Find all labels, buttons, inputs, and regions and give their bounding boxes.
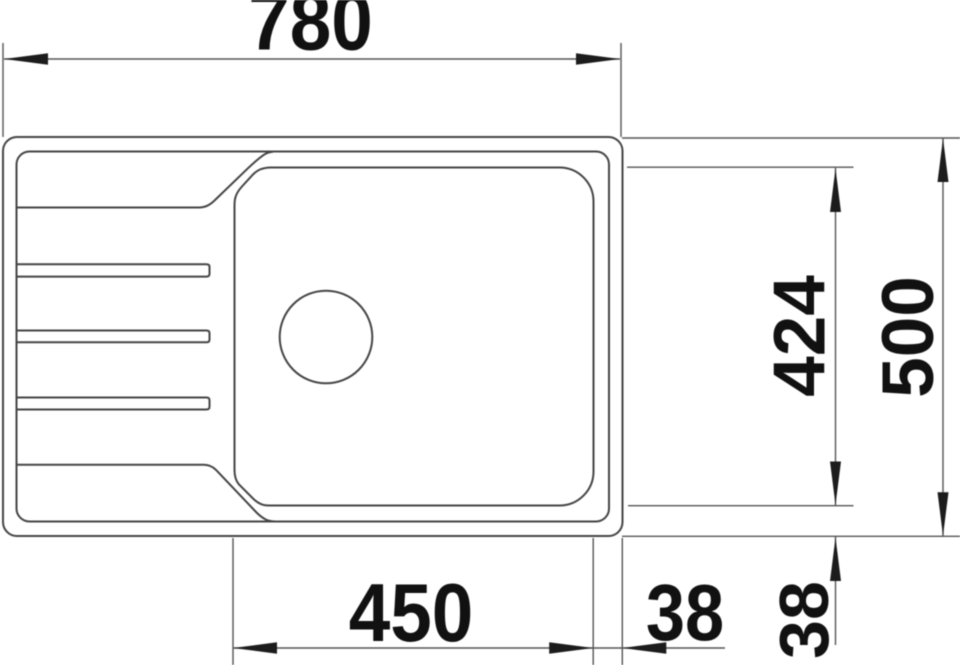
svg-text:450: 450	[349, 566, 474, 659]
svg-text:424: 424	[760, 275, 841, 397]
svg-text:780: 780	[248, 0, 373, 67]
svg-text:38: 38	[646, 568, 724, 657]
svg-text:38: 38	[765, 581, 843, 659]
svg-text:500: 500	[868, 276, 949, 398]
